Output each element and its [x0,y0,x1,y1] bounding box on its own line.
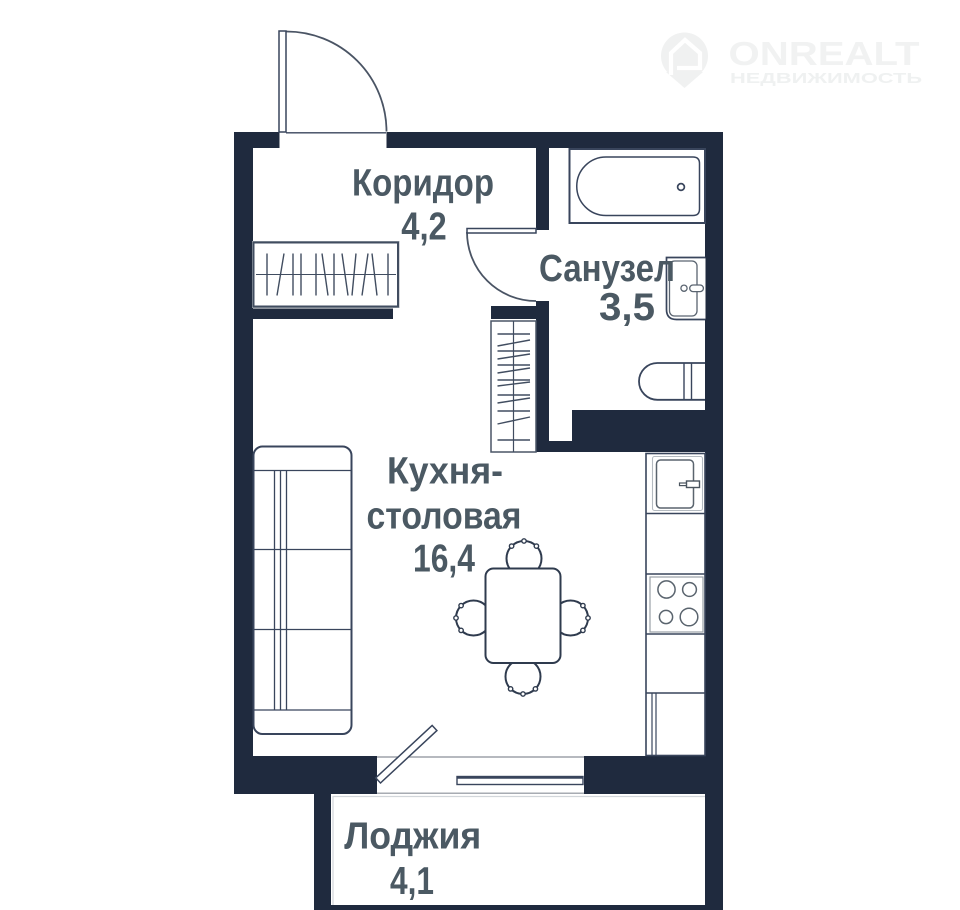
svg-text:16,4: 16,4 [413,538,475,581]
svg-text:Коридор: Коридор [352,163,494,205]
svg-text:ONREALT: ONREALT [729,36,921,73]
svg-text:4,2: 4,2 [401,206,447,249]
svg-text:Кухня-: Кухня- [387,451,503,493]
svg-text:3,5: 3,5 [599,286,655,329]
svg-text:столовая: столовая [367,496,522,538]
svg-text:НЕДВИЖИМОСТЬ: НЕДВИЖИМОСТЬ [730,70,922,87]
svg-text:4,1: 4,1 [390,860,434,903]
svg-text:Лоджия: Лоджия [344,816,481,858]
svg-text:Санузел: Санузел [539,248,675,290]
